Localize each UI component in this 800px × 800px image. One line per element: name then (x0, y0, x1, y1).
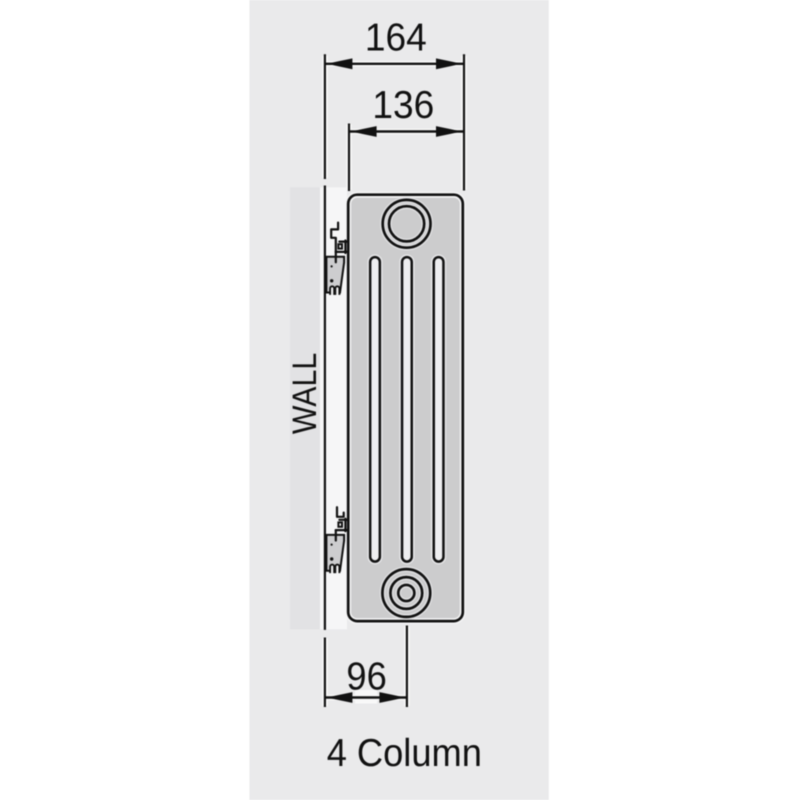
svg-text:164: 164 (365, 17, 427, 60)
svg-text:96: 96 (346, 656, 386, 699)
svg-text:4 Column: 4 Column (327, 732, 482, 775)
svg-text:136: 136 (372, 84, 434, 127)
svg-text:WALL: WALL (286, 353, 324, 434)
